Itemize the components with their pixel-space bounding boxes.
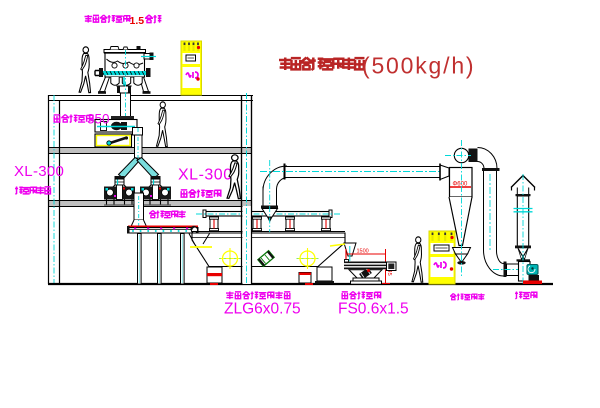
svg-text:1.5: 1.5: [130, 15, 145, 27]
svg-text:XL-300: XL-300: [14, 163, 64, 180]
svg-text:(500kg/h): (500kg/h): [362, 53, 475, 79]
svg-text:ZLG6x0.75: ZLG6x0.75: [224, 301, 301, 318]
svg-text:XL-300: XL-300: [178, 167, 233, 184]
svg-text:350: 350: [87, 112, 110, 127]
svg-text:1500: 1500: [357, 249, 369, 255]
svg-text:Φ600: Φ600: [453, 182, 468, 188]
svg-text:FS0.6x1.5: FS0.6x1.5: [338, 301, 409, 318]
